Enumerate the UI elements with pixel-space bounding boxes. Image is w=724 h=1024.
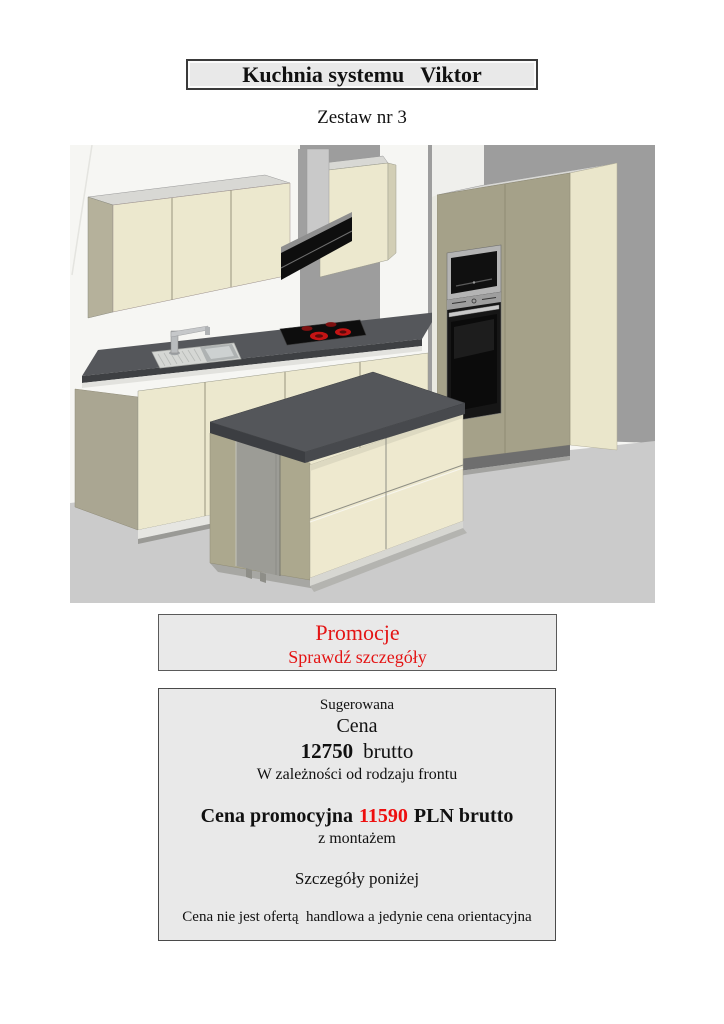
suggested-price-value: 12750 bbox=[301, 739, 354, 763]
hood-chimney bbox=[298, 149, 307, 246]
kitchen-scene-svg bbox=[70, 145, 655, 603]
island-appliance-inset bbox=[236, 441, 280, 576]
base-side-panel bbox=[75, 389, 138, 530]
price-box: Sugerowana Cena 12750brutto W zależności… bbox=[158, 688, 556, 941]
title-box: Kuchnia systemu Viktor bbox=[186, 59, 538, 90]
details-note: Szczegóły poniżej bbox=[159, 869, 555, 889]
promo-price-suffix: PLN brutto bbox=[414, 805, 513, 827]
promo-box: Promocje Sprawdź szczegóły bbox=[158, 614, 557, 671]
built-in-microwave bbox=[447, 245, 501, 300]
set-subtitle: Zestaw nr 3 bbox=[0, 107, 724, 129]
suggested-price-line: 12750brutto bbox=[159, 739, 555, 764]
variant-note: W zależności od rodzaju frontu bbox=[159, 766, 555, 784]
burner bbox=[326, 322, 337, 327]
price-word: Cena bbox=[159, 715, 555, 738]
promo-subheading: Sprawdź szczegóły bbox=[159, 647, 556, 668]
promo-price-prefix: Cena promocyjna bbox=[201, 805, 353, 827]
promo-heading: Promocje bbox=[159, 620, 556, 646]
page-title: Kuchnia systemu Viktor bbox=[242, 62, 482, 88]
burner bbox=[302, 326, 313, 331]
installation-note: z montażem bbox=[159, 830, 555, 848]
promo-price-value: 11590 bbox=[359, 805, 408, 827]
disclaimer: Cena nie jest ofertą handlowa a jedynie … bbox=[159, 909, 555, 926]
kitchen-render bbox=[70, 145, 655, 603]
suggested-price-suffix: brutto bbox=[363, 739, 413, 763]
suggested-label: Sugerowana bbox=[159, 697, 555, 714]
promo-price-line: Cena promocyjna11590PLN brutto bbox=[159, 805, 555, 828]
flyer-page: Kuchnia systemu Viktor Zestaw nr 3 bbox=[0, 0, 724, 1024]
